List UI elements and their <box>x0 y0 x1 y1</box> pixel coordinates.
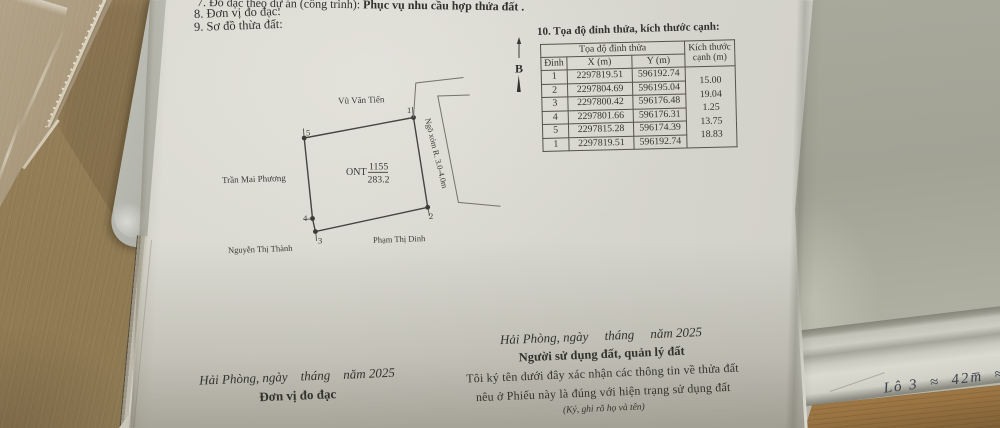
svg-text:2: 2 <box>429 211 433 221</box>
svg-text:ONT: ONT <box>346 167 367 178</box>
svg-text:3: 3 <box>318 236 322 246</box>
svg-text:283.2: 283.2 <box>368 175 390 186</box>
svg-text:4: 4 <box>303 213 308 223</box>
svg-text:B: B <box>515 62 523 76</box>
svg-text:Ngõ xóm R. 3.0-4.0m: Ngõ xóm R. 3.0-4.0m <box>423 117 449 190</box>
svg-text:1155: 1155 <box>369 162 388 173</box>
svg-text:5: 5 <box>306 128 310 138</box>
svg-text:1: 1 <box>407 105 411 115</box>
